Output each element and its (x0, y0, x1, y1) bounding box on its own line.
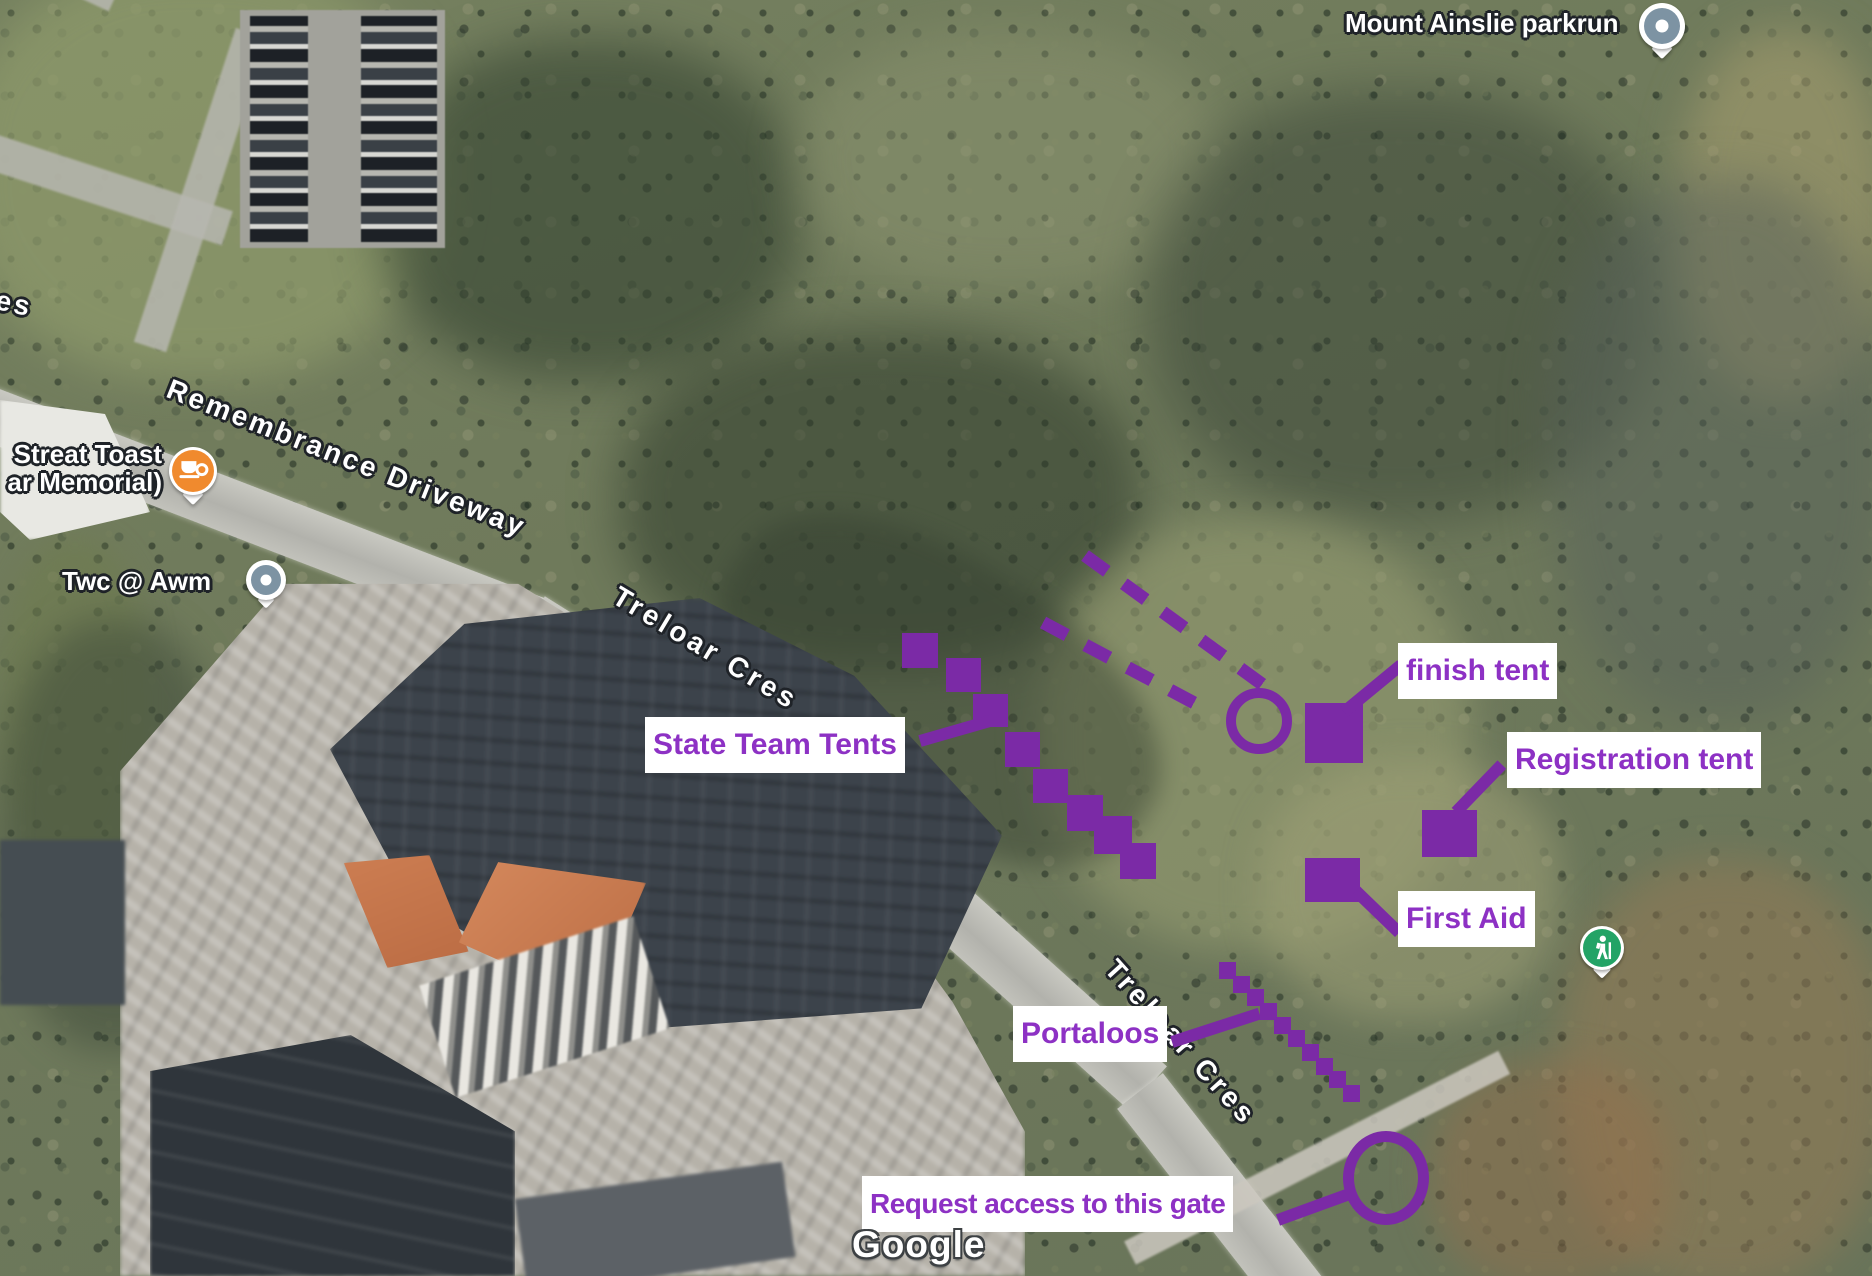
pin-bubble (1639, 3, 1685, 49)
parkrun-pin[interactable] (1639, 3, 1685, 49)
registration-tent-label: Registration tent (1507, 732, 1761, 788)
tent-square (902, 633, 938, 668)
parked-cars (361, 16, 437, 242)
parked-cars (250, 16, 308, 242)
tent-square (946, 658, 981, 692)
tent-square (1033, 769, 1068, 803)
pin-bubble (246, 560, 286, 600)
first-aid-label: First Aid (1398, 891, 1535, 947)
place-pin-twc[interactable] (246, 560, 286, 600)
parking-lot (240, 10, 445, 248)
portaloo-marker (1343, 1085, 1360, 1102)
tent-square (1120, 843, 1156, 879)
pin-bubble (1580, 926, 1624, 970)
hiker-icon (1583, 929, 1621, 967)
coffee-cup-icon (181, 461, 201, 478)
place-label-cafe-line2: ar Memorial) (0, 468, 162, 496)
cafe-icon (172, 450, 214, 492)
place-label-cafe[interactable]: Streat Toast ar Memorial) (0, 440, 162, 496)
portaloos-label: Portaloos (1013, 1006, 1167, 1062)
place-label-cafe-line1: Streat Toast (0, 440, 162, 468)
finish-tent-square (1305, 703, 1363, 763)
google-watermark[interactable]: Google (852, 1224, 985, 1266)
finish-circle-marker (1226, 688, 1292, 754)
tent-square (1005, 732, 1040, 767)
registration-tent-square (1422, 810, 1477, 857)
place-label-twc[interactable]: Twc @ Awm (62, 566, 211, 597)
trailhead-pin[interactable] (1580, 926, 1624, 970)
finish-tent-label: finish tent (1398, 643, 1557, 699)
pin-center-dot (261, 575, 272, 586)
terrain-patch (1550, 180, 1872, 720)
pin-bubble (169, 447, 217, 495)
state-team-tents-label: State Team Tents (645, 717, 905, 773)
place-label-parkrun[interactable]: Mount Ainslie parkrun (1345, 8, 1619, 39)
gate-circle-marker (1343, 1131, 1429, 1225)
cafe-pin[interactable] (169, 447, 217, 495)
pin-center-dot (1656, 20, 1669, 33)
building (0, 840, 125, 1005)
map-canvas[interactable]: es Remembrance Driveway Treloar Cres Tre… (0, 0, 1872, 1276)
